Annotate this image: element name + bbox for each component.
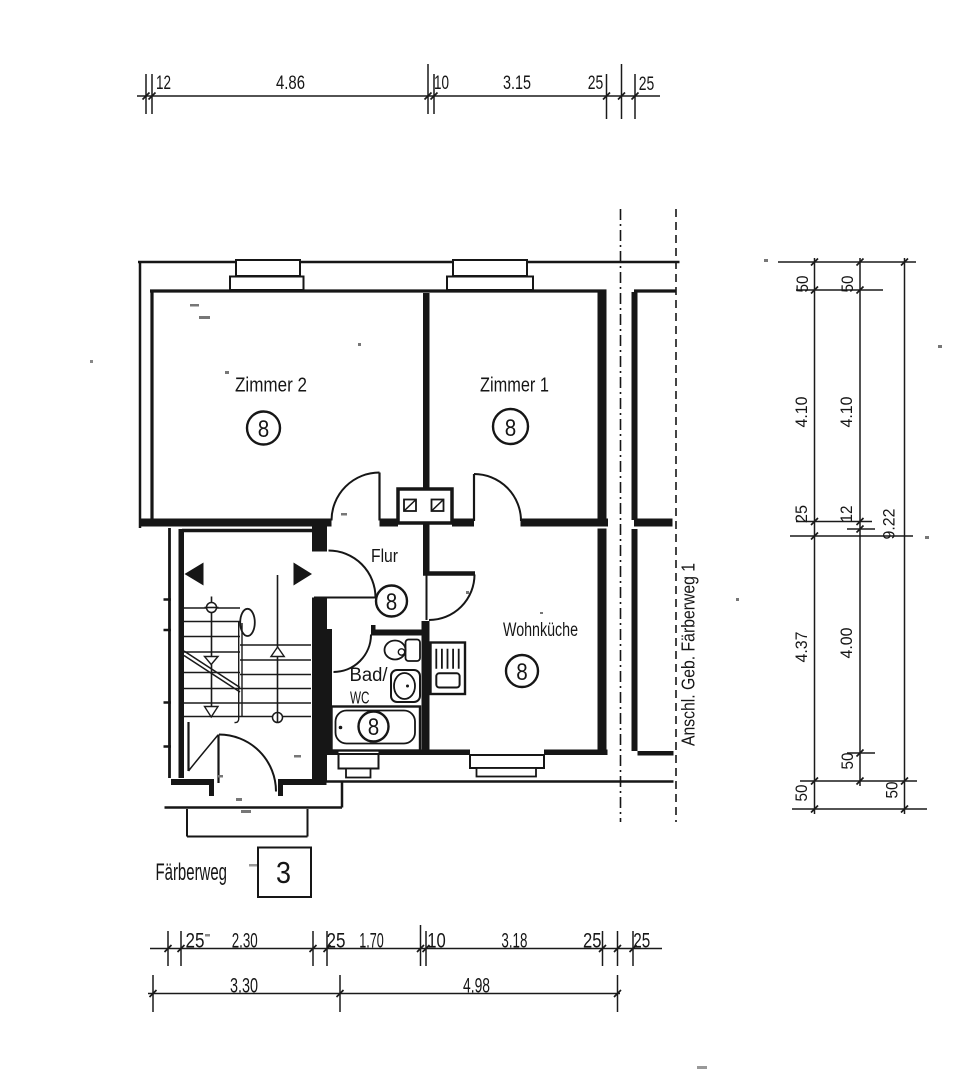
svg-text:25: 25 [633,930,650,953]
svg-text:8: 8 [368,714,380,741]
svg-text:Flur: Flur [371,545,398,566]
svg-text:4.37: 4.37 [792,632,811,663]
svg-text:25: 25 [588,73,604,94]
svg-text:25: 25 [639,74,655,95]
svg-text:Anschl. Geb. Färberweg 1: Anschl. Geb. Färberweg 1 [679,563,699,746]
svg-text:Zimmer 2: Zimmer 2 [235,375,307,397]
svg-text:Färberweg: Färberweg [156,859,228,886]
svg-text:Bad/: Bad/ [350,665,389,686]
svg-text:8: 8 [505,415,517,442]
svg-text:25: 25 [327,930,346,953]
svg-text:8: 8 [516,659,528,686]
svg-text:10: 10 [434,73,449,94]
svg-text:Wohnküche: Wohnküche [503,620,578,641]
svg-text:50: 50 [883,782,902,799]
svg-text:4.10: 4.10 [837,397,856,428]
svg-text:25: 25 [186,930,205,953]
svg-text:25: 25 [583,930,602,953]
svg-text:12: 12 [837,506,856,523]
svg-text:25: 25 [792,505,811,523]
svg-text:3: 3 [276,855,291,890]
svg-text:4.86: 4.86 [276,73,305,94]
svg-text:4.00: 4.00 [837,628,856,659]
svg-text:4.98: 4.98 [463,975,490,998]
svg-text:WC: WC [350,688,370,708]
svg-text:Zimmer 1: Zimmer 1 [480,375,549,397]
svg-text:1.70: 1.70 [359,930,384,953]
svg-text:50: 50 [793,276,812,293]
svg-text:9.22: 9.22 [880,509,899,540]
svg-text:3.30: 3.30 [230,975,258,998]
svg-text:50: 50 [838,753,857,770]
svg-text:50: 50 [838,276,857,293]
svg-text:12: 12 [156,73,171,94]
svg-text:50: 50 [792,785,811,802]
svg-text:3.15: 3.15 [503,73,531,94]
svg-text:8: 8 [258,416,270,443]
svg-text:2.30: 2.30 [232,930,258,953]
svg-text:8: 8 [386,589,398,616]
svg-text:10: 10 [427,930,446,953]
svg-text:3.18: 3.18 [501,930,527,953]
svg-text:4.10: 4.10 [792,397,811,428]
